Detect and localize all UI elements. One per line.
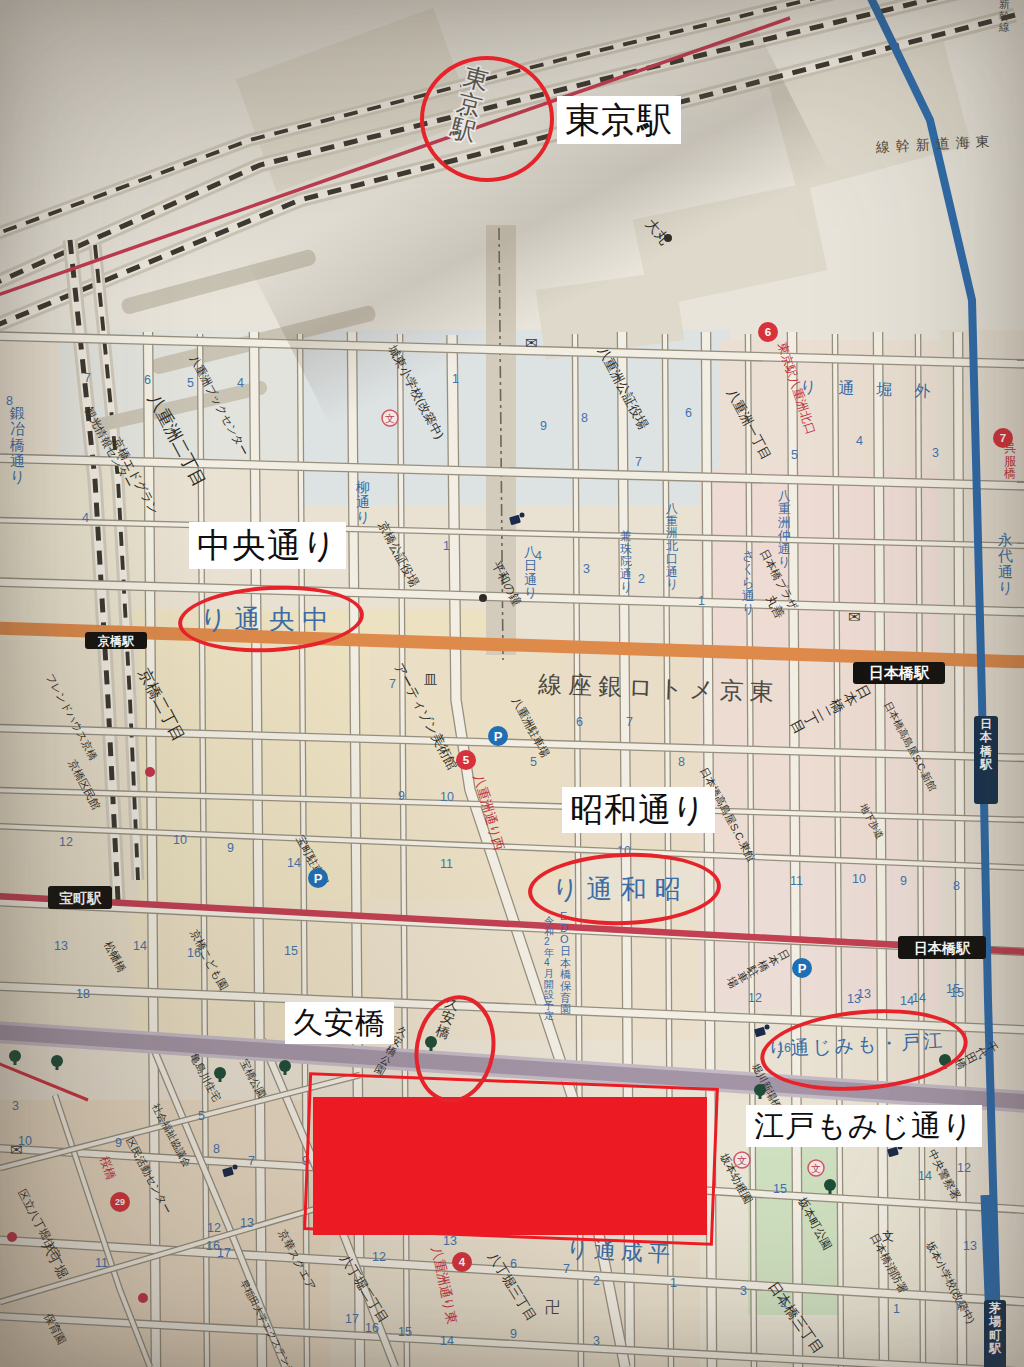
post-office-icon: ✉ — [10, 1141, 23, 1158]
block-number: 10 — [440, 790, 454, 804]
block-number: 9 — [540, 419, 547, 433]
tree-icon — [214, 1067, 226, 1079]
block-number: 1 — [443, 539, 450, 553]
block-number: 13 — [963, 1239, 977, 1253]
block-number: 2 — [638, 572, 645, 586]
block-number: 15 — [946, 982, 960, 996]
block-number: 8 — [213, 1142, 220, 1156]
station-badge-label: 茅場町駅 — [988, 1301, 1002, 1355]
map-photo: り通央中り通和昭り通じみも・戸江り通堀外り通成平鍛冶橋通り柳通り八日通り兼珠院通… — [0, 0, 1024, 1367]
temple-icon: 卍 — [545, 1298, 560, 1315]
block-number: 1 — [893, 1302, 900, 1316]
block-number: 13 — [54, 939, 68, 953]
block-number: 4 — [856, 434, 863, 448]
station-badge-label: 日本橋駅 — [869, 664, 930, 681]
block-number: 12 — [59, 835, 73, 849]
map-label: 鍛冶橋通り — [9, 404, 25, 485]
kyuan-bashi-label: 久安橋 — [285, 1002, 394, 1044]
block-number: 11 — [790, 874, 803, 888]
school-icon: 文 — [882, 1229, 894, 1243]
block-number: 3 — [12, 1099, 19, 1113]
block-number: 11 — [95, 1256, 108, 1270]
tree-icon — [754, 1084, 766, 1096]
post-office-icon: ✉ — [525, 334, 538, 351]
tree-icon — [824, 1179, 836, 1191]
block-number: 1 — [670, 1276, 677, 1290]
block-number: 10 — [173, 833, 187, 847]
block-number: 12 — [372, 1250, 386, 1264]
block-number: 14 — [287, 856, 301, 870]
block-number: 5 — [791, 448, 798, 462]
block-number: 17 — [217, 1246, 231, 1260]
edo-momiji-dori-label: 江戸もみじ通り — [746, 1105, 982, 1147]
map-label: 令和2年4月開設予定 — [543, 915, 554, 1021]
block-number: 3 — [583, 562, 590, 576]
block-number: 8 — [678, 755, 685, 769]
block-number: 9 — [227, 841, 234, 855]
poi-dot-red — [145, 767, 155, 777]
block-number: 15 — [398, 1325, 412, 1339]
svg-text:6: 6 — [765, 326, 771, 338]
station-badge-label: 京橋駅 — [97, 634, 135, 648]
block-number: 2 — [780, 1296, 787, 1310]
block-number: 14 — [440, 1334, 454, 1348]
redaction-rectangle — [313, 1097, 707, 1235]
block-number: 9 — [115, 1136, 122, 1150]
block-number: 15 — [773, 1182, 787, 1196]
tree-icon — [51, 1055, 63, 1067]
block-number: 7 — [955, 1299, 962, 1313]
svg-text:4: 4 — [459, 1256, 466, 1268]
block-number: 12 — [957, 1161, 971, 1175]
block-number: 4 — [237, 376, 244, 390]
block-number: 6 — [144, 373, 151, 387]
station-badge-label: 日本橋駅 — [914, 940, 971, 956]
poi-dot — [479, 594, 487, 602]
block-number: 1 — [698, 594, 705, 608]
block-number: 11 — [440, 857, 453, 871]
map-label: 永代通り — [998, 531, 1013, 596]
station-badge-label: 宝町駅 — [59, 890, 102, 906]
block-number: 5 — [198, 1109, 205, 1123]
block-number: 14 — [918, 1169, 932, 1183]
svg-text:7: 7 — [1000, 432, 1006, 444]
block-number: 4 — [82, 511, 89, 525]
tokyo-station-label: 東京駅 — [557, 96, 681, 144]
chuo-dori-label: 中央通り — [189, 522, 346, 569]
map-label: 新幹線 — [998, 0, 1010, 33]
block-number: 13 — [443, 1234, 457, 1248]
block-number: 12 — [207, 1221, 221, 1235]
svg-text:P: P — [314, 871, 323, 886]
block-number: 7 — [84, 371, 91, 385]
post-office-icon: ✉ — [848, 608, 861, 625]
block-number: 10 — [852, 872, 866, 886]
block-number: 14 — [900, 994, 914, 1008]
block-number: 2 — [593, 1274, 600, 1288]
block-number: 8 — [953, 879, 960, 893]
svg-text:P: P — [798, 961, 807, 976]
poi-dot-red — [7, 1232, 17, 1242]
poi-dot-red — [138, 1293, 148, 1303]
block-number: 5 — [530, 755, 537, 769]
svg-text:P: P — [494, 729, 503, 744]
block-number: 7 — [626, 715, 633, 729]
map-label: 八重洲仲通り — [778, 489, 791, 569]
block-number: 7 — [389, 677, 396, 691]
svg-text:文: 文 — [385, 413, 395, 424]
block-number: 12 — [748, 991, 762, 1005]
svg-text:5: 5 — [463, 754, 470, 766]
block-number: 9 — [900, 874, 907, 888]
block-number: 7 — [563, 1262, 570, 1276]
block-number: 17 — [345, 1312, 359, 1326]
block-number: 16 — [365, 1321, 379, 1335]
block-number: 14 — [133, 939, 147, 953]
block-number: 7 — [248, 1154, 255, 1168]
block-number: 9 — [398, 789, 405, 803]
station-badge-label: 日本橋駅 — [979, 717, 993, 771]
map-label: 八重洲北口通り — [666, 501, 678, 591]
showa-dori-label: 昭和通り — [562, 787, 715, 833]
block-number: 13 — [240, 1216, 254, 1230]
tokyo-station-circle-annotation — [420, 56, 554, 182]
block-number: 13 — [847, 992, 861, 1006]
tree-icon — [279, 1060, 291, 1072]
svg-text:文: 文 — [811, 1163, 821, 1174]
block-number: 6 — [576, 715, 583, 729]
block-number: 8 — [6, 394, 13, 408]
block-number: 18 — [76, 987, 90, 1001]
map-label: さくら通り — [742, 549, 755, 616]
block-number: 3 — [593, 1334, 600, 1348]
map-label: 柳通り — [355, 479, 370, 525]
block-number: 6 — [510, 1257, 517, 1271]
svg-text:29: 29 — [115, 1197, 125, 1207]
block-number: 15 — [284, 944, 298, 958]
poi-dot — [664, 234, 672, 242]
block-number: 1 — [452, 372, 459, 386]
block-number: 3 — [932, 446, 939, 460]
block-number: 5 — [187, 376, 194, 390]
map-label: 兼珠院通り — [620, 529, 632, 594]
museum-icon: 皿 — [424, 672, 437, 687]
svg-text:文: 文 — [737, 1155, 747, 1166]
block-number: 7 — [635, 455, 642, 469]
block-number: 4 — [535, 549, 542, 563]
block-number: 6 — [685, 406, 692, 420]
block-number: 14 — [912, 991, 926, 1005]
block-number: 9 — [510, 1327, 517, 1341]
tree-icon — [9, 1050, 21, 1062]
block-number: 16 — [187, 946, 201, 960]
block-number: 3 — [740, 1284, 747, 1298]
block-number: 8 — [581, 411, 588, 425]
